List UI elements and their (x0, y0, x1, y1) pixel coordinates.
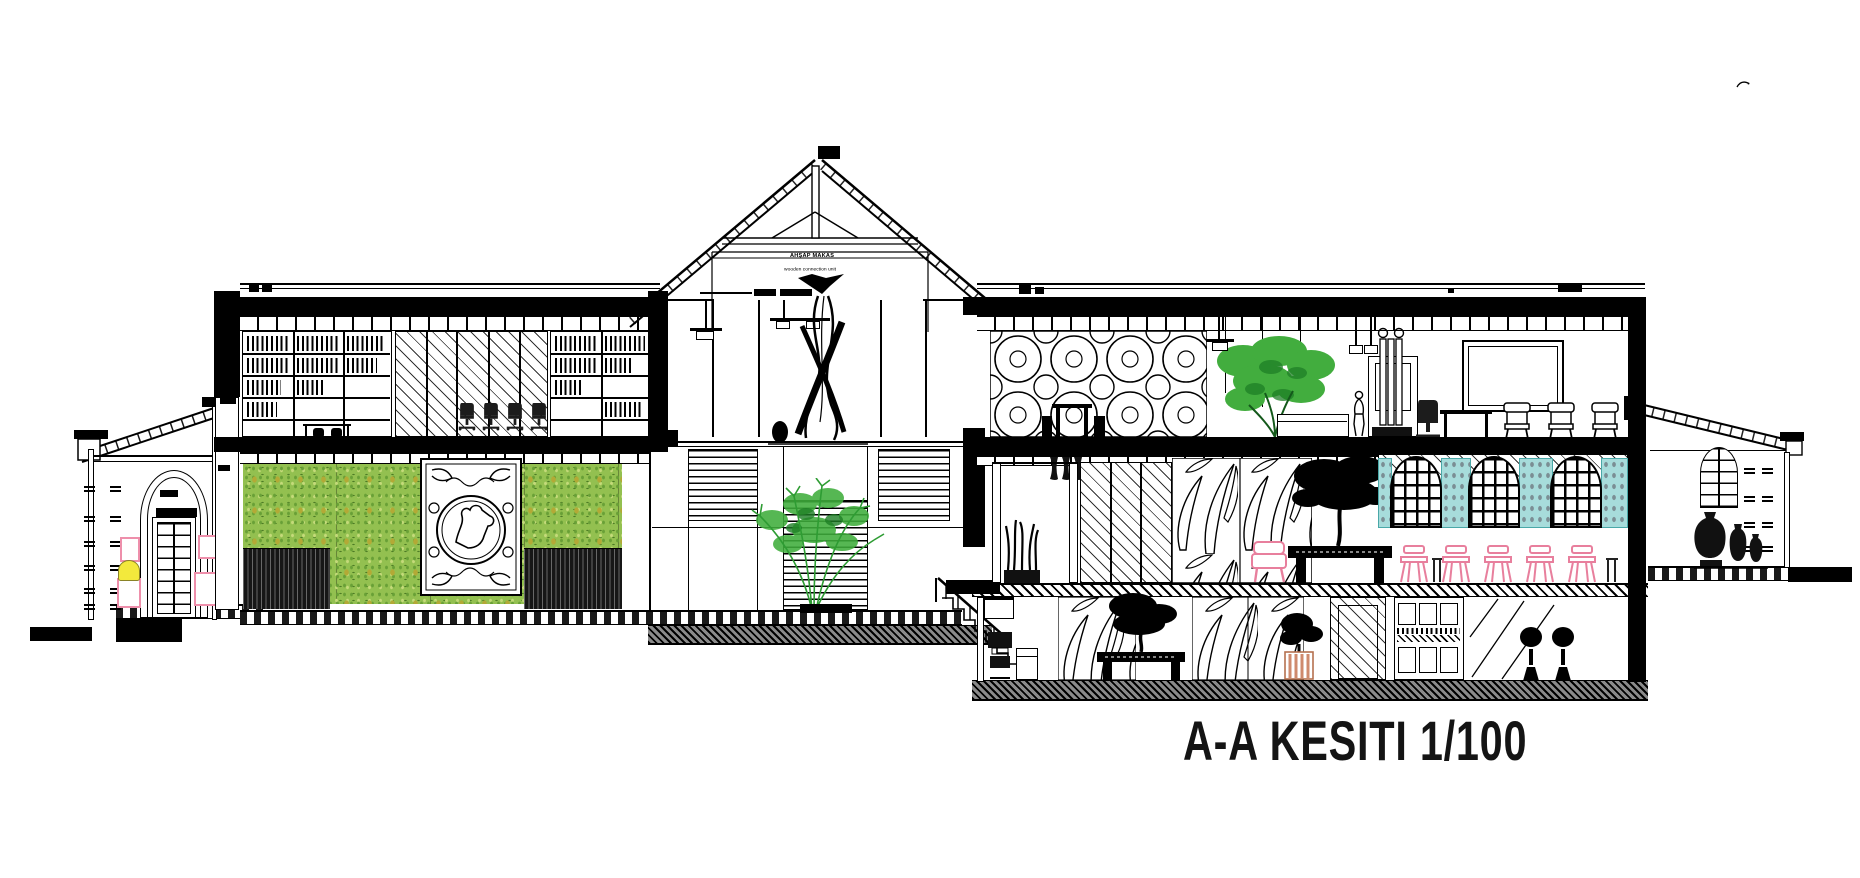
shelf-line (551, 353, 650, 355)
cabinet-door (1398, 603, 1416, 625)
right-roof-slab (963, 297, 1645, 315)
left-roof-parapet-line2 (240, 288, 660, 289)
books-row (605, 402, 643, 417)
right-roof-parapet-line2 (977, 288, 1645, 289)
table-leg (1485, 414, 1488, 437)
arched-lattice-window (1390, 456, 1442, 528)
left-floor-slab (214, 437, 668, 452)
arched-lattice-window (1550, 456, 1602, 528)
lamp-icon (1349, 345, 1363, 354)
stool-line (1017, 656, 1037, 657)
slatted-screen-left (243, 548, 330, 609)
yellow-lamp (118, 560, 140, 581)
wall-cabinet (984, 597, 1014, 619)
truss-label: AHŞAP MAKAS (790, 252, 834, 258)
books-row (247, 380, 281, 395)
shelf-line (551, 397, 650, 399)
brace-wall-lines (1468, 597, 1558, 680)
glazed-door-basement (1330, 597, 1386, 680)
bar-stool-row (1398, 545, 1628, 583)
chair-icon (1042, 416, 1052, 437)
wall-tick (1762, 496, 1773, 502)
pink-planter-left (117, 578, 141, 608)
wall-tick (84, 486, 95, 492)
books-row (555, 336, 597, 351)
shelf-line (243, 353, 390, 355)
wall-tick (84, 516, 95, 522)
walkway-slab-end (652, 430, 678, 447)
ground-bar-far-left (30, 627, 92, 641)
chair-icon (1500, 402, 1534, 440)
section-drawing-canvas: AHŞAP MAKAS wooden connection unit (0, 0, 1860, 878)
right-roof-parapet-line (977, 283, 1645, 285)
counter-hatch (1397, 635, 1460, 642)
presentation-board-inner (1468, 346, 1558, 406)
stool (1016, 648, 1038, 680)
books-row (347, 358, 377, 373)
left-annex-eave-line (94, 455, 214, 457)
cabinet-door (1419, 603, 1437, 625)
wall-tick (110, 486, 121, 492)
bookshelf-right (550, 331, 652, 437)
atrium-wall-line (712, 300, 714, 437)
wall-tick (84, 541, 95, 547)
atrium-flank-ceiling (923, 299, 965, 301)
bonsai-icon (1095, 590, 1190, 680)
wall-mark (218, 465, 230, 471)
atrium-wall-line (880, 300, 882, 437)
chair-icon (1588, 402, 1622, 440)
shelf-line (243, 419, 390, 421)
truss-sublabel: wooden connection unit (784, 266, 836, 272)
right-upper-ceiling-grid (977, 315, 1630, 331)
books-row (297, 336, 339, 351)
bottle-row (1397, 628, 1460, 634)
cabinet-door (1440, 603, 1458, 625)
urn-icon (1690, 510, 1772, 570)
walkway-line (652, 441, 985, 443)
basement-west-wall (977, 597, 984, 682)
ground-bar-far-right (1788, 567, 1852, 582)
books-row (247, 358, 289, 373)
tree-icon (742, 478, 887, 616)
cabinet-door (1398, 647, 1416, 673)
table-leg (1056, 408, 1060, 437)
right-block-east-wall (1628, 297, 1646, 682)
louver-panel-right (878, 449, 950, 521)
office-chair-icon (504, 394, 526, 438)
books-row (555, 358, 597, 373)
table-leg (1444, 414, 1447, 437)
label-leader-line (700, 292, 752, 294)
left-annex-roof (62, 396, 222, 468)
pendant-stem (1218, 315, 1220, 339)
slatted-screen-right (524, 548, 622, 609)
cabinet-door (1419, 647, 1437, 673)
roof-vent-mark (1019, 285, 1031, 294)
stained-glass-panel (1601, 458, 1628, 528)
planter-box (1277, 414, 1349, 437)
mullion (1110, 463, 1112, 582)
door-head-mark (160, 490, 178, 497)
left-block-east-wall-line (649, 452, 651, 610)
wall-tick (1762, 468, 1773, 474)
books-row (297, 380, 323, 395)
door-head (992, 462, 1078, 464)
roof-vent-mark (1035, 287, 1044, 294)
books-row (347, 336, 385, 351)
shelf-line (551, 375, 650, 377)
wall-tick (110, 516, 121, 522)
pendant-stem (1370, 315, 1372, 345)
plant-stand-icon (1550, 625, 1576, 682)
ornamental-panel (420, 458, 522, 596)
roof-vent-mark (262, 285, 272, 292)
stained-glass-panel (1441, 458, 1471, 528)
arched-lattice-window (1468, 456, 1520, 528)
lamp-icon (1364, 345, 1378, 354)
entry-door-glazing (157, 522, 191, 614)
atrium-wall-line (925, 300, 927, 437)
corner-mark (1736, 78, 1750, 90)
walkway-line2 (652, 446, 985, 447)
door-jamb (992, 462, 1001, 583)
door-leaf (1338, 605, 1378, 679)
wall-tick (84, 604, 95, 610)
wall-tick (1744, 468, 1755, 474)
coffee-machine-icon (986, 630, 1016, 680)
shelf-divider (293, 332, 295, 438)
arched-window (1700, 447, 1738, 508)
books-row (605, 336, 645, 351)
glazed-partition-ground (1080, 462, 1172, 583)
left-annex-outer-wall (88, 449, 94, 620)
shelf-line (551, 419, 650, 421)
stained-glass-panel (1519, 458, 1553, 528)
chair-icon (1094, 416, 1105, 437)
chair-icon (1544, 402, 1578, 440)
bookshelf-left (242, 331, 392, 437)
sculpture-icon (768, 272, 868, 450)
office-chair-icon (480, 394, 502, 438)
shelf-divider (343, 332, 345, 438)
table-top (303, 424, 351, 426)
roof-vent-mark (1558, 284, 1582, 292)
cabinet-unit (1394, 597, 1464, 680)
books-row (297, 358, 339, 373)
wall-mark (220, 398, 236, 404)
shelf-line (243, 375, 390, 377)
cabinet-door (1440, 647, 1458, 673)
tube-lamp-icon (1372, 326, 1412, 438)
plant-stand-icon (1518, 625, 1544, 682)
books-row (247, 336, 289, 351)
roof-vent-mark (249, 283, 259, 292)
office-chair-icon (456, 394, 478, 438)
left-roof-parapet-line (240, 283, 660, 285)
person-icon (1348, 390, 1370, 438)
roof-vent-mark (1448, 288, 1454, 293)
basement-floor-slab (972, 680, 1648, 701)
left-annex-eave-line2 (94, 461, 214, 462)
door-jamb (1069, 462, 1078, 583)
right-annex-outer-wall (1784, 452, 1790, 568)
mullion (1140, 463, 1142, 582)
dry-plant-icon (1002, 518, 1042, 583)
shelf-divider (601, 332, 603, 438)
lamp-icon (1212, 342, 1228, 351)
pendant-stem (705, 300, 707, 328)
office-chair-icon (1412, 398, 1444, 440)
wall-tick (84, 565, 95, 571)
atrium-wall-line (758, 300, 760, 437)
ground-floor-slab-right (972, 583, 1648, 597)
drawing-title: A-A KESITI 1/100 (1183, 708, 1527, 773)
books-row (555, 380, 583, 395)
pendant-stem (1355, 315, 1357, 345)
pink-fixture-left (120, 537, 140, 562)
left-upper-ceiling-grid (240, 315, 652, 331)
tree-planter (800, 604, 852, 613)
wall-tick (1744, 496, 1755, 502)
table-leg (1084, 408, 1088, 437)
office-chair-icon (528, 394, 550, 438)
books-row (605, 358, 633, 373)
left-block-west-wall (215, 397, 239, 610)
door-lintel (156, 508, 197, 517)
books-row (247, 402, 277, 417)
foundation-left-annex (116, 618, 182, 642)
shelf-line (243, 397, 390, 399)
frame-line (688, 521, 689, 611)
wall-tick (84, 588, 95, 594)
mullion (426, 332, 428, 436)
lamp-icon (696, 331, 714, 340)
potted-plant-icon (1275, 610, 1325, 680)
planter-line (1278, 421, 1347, 422)
